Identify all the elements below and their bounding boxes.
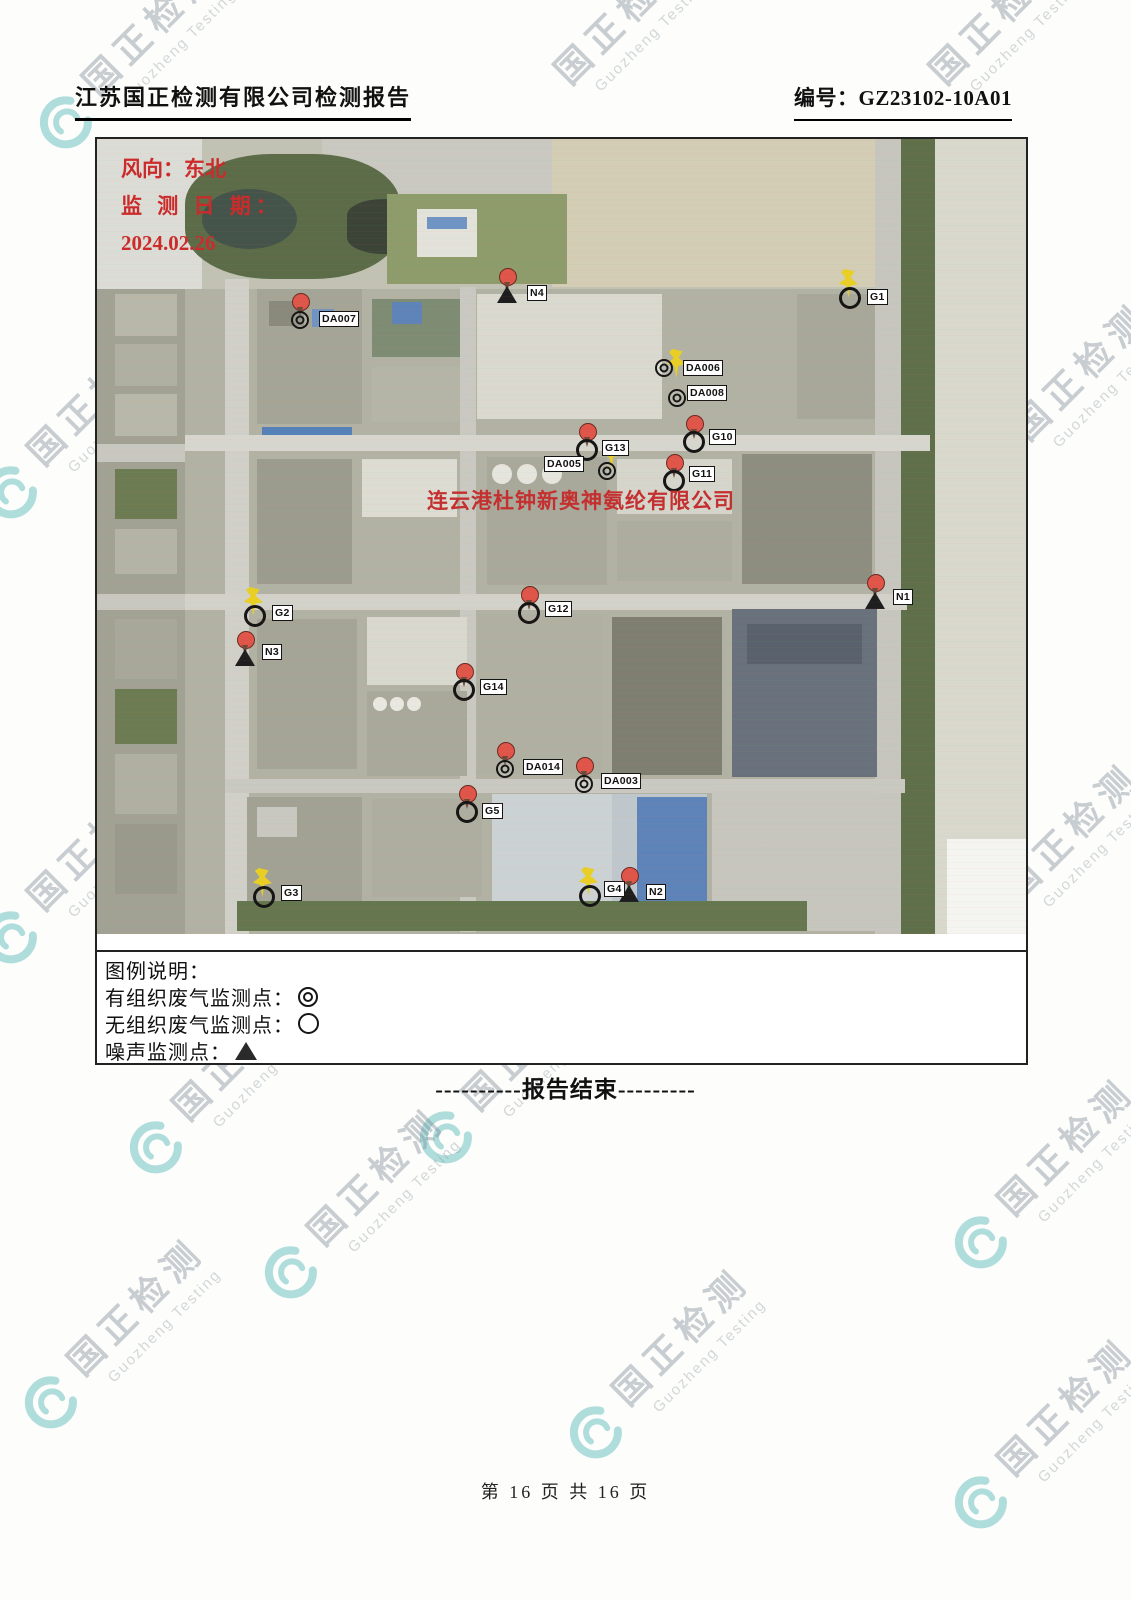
marker-label-DA007: DA007 [319, 311, 359, 327]
map-terrain-block [115, 469, 177, 519]
red-pin-icon [292, 293, 310, 311]
map-terrain-block [492, 464, 512, 484]
watermark-en-text: Guozheng Testing [345, 1136, 465, 1256]
map-terrain-block [257, 459, 352, 584]
watermark-cn-text: 国正检测 [54, 1224, 215, 1385]
unorganized-emission-point-icon [683, 431, 705, 453]
watermark-text: 国正检测 Guozheng Testing [599, 1254, 774, 1429]
red-pin-icon [576, 757, 594, 775]
map-terrain-block [257, 619, 357, 769]
company-name-label: 连云港杜钟新奥神氨纶有限公司 [427, 485, 735, 515]
legend-item-unorganized: 无组织废气监测点： [105, 1010, 1026, 1037]
guozheng-watermark: 国正检测 Guozheng Testing [936, 1324, 1131, 1547]
marker-label-G12: G12 [545, 601, 572, 617]
report-title: 江苏国正检测有限公司检测报告 [75, 80, 411, 121]
map-terrain-block [372, 367, 462, 422]
unorganized-emission-point-icon [244, 605, 266, 627]
map-terrain-block [387, 194, 567, 284]
satellite-map: 风向：东北 监 测 日 期： 2024.02.26 连云港杜钟新奥神氨纶有限公司… [97, 139, 1026, 934]
map-terrain-block [517, 464, 537, 484]
marker-label-G13: G13 [602, 440, 629, 456]
monitor-date-label: 监 测 日 期： [121, 188, 282, 225]
map-terrain-block [612, 617, 722, 775]
marker-label-N2: N2 [646, 884, 666, 900]
map-terrain-block [115, 294, 177, 336]
map-terrain-block [115, 344, 177, 386]
noise-point-icon [865, 592, 885, 609]
map-terrain-block [185, 435, 930, 451]
guozheng-watermark: 国正检测 Guozheng Testing [6, 1224, 229, 1447]
map-terrain-block [115, 689, 177, 744]
organized-emission-point-icon [298, 987, 318, 1007]
map-terrain-block [947, 839, 1026, 934]
map-area: 风向：东北 监 测 日 期： 2024.02.26 连云港杜钟新奥神氨纶有限公司… [97, 139, 1026, 950]
unorganized-emission-point-icon [579, 885, 601, 907]
map-terrain-block [373, 697, 387, 711]
marker-label-DA014: DA014 [523, 759, 563, 775]
unorganized-emission-point-icon [298, 1013, 319, 1034]
map-terrain-block [367, 617, 467, 685]
map-terrain-block [115, 824, 177, 894]
map-terrain-block [97, 594, 185, 610]
watermark-en-text: Guozheng Testing [1050, 331, 1131, 451]
marker-label-N4: N4 [527, 285, 547, 301]
organized-emission-point-icon [291, 311, 309, 329]
watermark-en-text: Guozheng Testing [650, 1296, 770, 1416]
guozheng-logo-icon [251, 1232, 330, 1311]
marker-label-G11: G11 [689, 466, 715, 482]
watermark-cn-text: 国正检测 [294, 1094, 455, 1255]
map-terrain-block [875, 139, 901, 934]
marker-label-N1: N1 [893, 589, 913, 605]
guozheng-logo-icon [0, 452, 50, 531]
watermark-en-text: Guozheng Testing [1040, 791, 1131, 911]
watermark-text: 国正检测 Guozheng Testing [984, 1324, 1131, 1499]
red-pin-icon [499, 268, 517, 286]
legend: 图例说明： 有组织废气监测点： 无组织废气监测点： 噪声监测点： [97, 950, 1026, 1063]
guozheng-logo-icon [11, 1362, 90, 1441]
legend-item-organized: 有组织废气监测点： [105, 983, 1026, 1010]
red-pin-icon [867, 574, 885, 592]
legend-organized-label: 有组织废气监测点： [105, 982, 294, 1011]
map-terrain-block [115, 529, 177, 574]
guozheng-logo-icon [0, 897, 50, 976]
marker-label-G2: G2 [272, 605, 293, 621]
watermark-text: 国正检测 Guozheng Testing [294, 1094, 469, 1269]
organized-emission-point-icon [496, 760, 514, 778]
red-pin-icon [497, 742, 515, 760]
noise-point-icon [235, 1042, 257, 1060]
organized-emission-point-icon [598, 462, 616, 480]
marker-label-G1: G1 [867, 289, 888, 305]
guozheng-logo-icon [406, 1097, 485, 1176]
unorganized-emission-point-icon [518, 602, 540, 624]
marker-label-DA005: DA005 [544, 456, 584, 472]
red-pin-icon [237, 631, 255, 649]
unorganized-emission-point-icon [453, 679, 475, 701]
map-annotation: 风向：东北 监 测 日 期： 2024.02.26 [121, 151, 282, 262]
marker-label-G3: G3 [281, 885, 302, 901]
watermark-cn-text: 国正检测 [984, 1324, 1131, 1485]
watermark-en-text: Guozheng Testing [105, 1266, 225, 1386]
organized-emission-point-icon [668, 389, 686, 407]
map-terrain-block [257, 807, 297, 837]
map-terrain-block [115, 394, 177, 436]
map-terrain-block [237, 901, 807, 931]
map-terrain-block [617, 521, 732, 581]
unorganized-emission-point-icon [456, 801, 478, 823]
marker-label-G4: G4 [604, 881, 625, 897]
unorganized-emission-point-icon [839, 287, 861, 309]
organized-emission-point-icon [575, 775, 593, 793]
noise-point-icon [235, 649, 255, 666]
page-number: 第 16 页 共 16 页 [0, 1478, 1131, 1504]
legend-title-row: 图例说明： [105, 956, 1026, 983]
marker-label-G5: G5 [482, 803, 503, 819]
legend-item-noise: 噪声监测点： [105, 1037, 1026, 1064]
map-report-box: 风向：东北 监 测 日 期： 2024.02.26 连云港杜钟新奥神氨纶有限公司… [95, 137, 1028, 1065]
marker-label-DA008: DA008 [687, 385, 727, 401]
map-terrain-block [427, 217, 467, 229]
map-terrain-block [97, 444, 185, 462]
watermark-en-text: Guozheng Testing [1035, 1106, 1131, 1226]
map-terrain-block [390, 697, 404, 711]
map-terrain-block [897, 139, 935, 934]
map-terrain-block [932, 139, 1026, 934]
noise-point-icon [497, 286, 517, 303]
marker-label-DA003: DA003 [601, 773, 641, 789]
report-page: 江苏国正检测有限公司检测报告 编号：GZ23102-10A01 风向：东北 监 … [0, 0, 1131, 1600]
monitor-date-value: 2024.02.26 [121, 225, 282, 262]
marker-label-DA006: DA006 [683, 360, 723, 376]
guozheng-logo-icon [556, 1392, 635, 1471]
end-of-report-text: ----------报告结束--------- [0, 1070, 1131, 1104]
watermark-en-text: Guozheng Testing [1035, 1366, 1131, 1486]
marker-label-N3: N3 [262, 644, 282, 660]
report-number: 编号：GZ23102-10A01 [794, 82, 1012, 121]
guozheng-watermark: 国正检测 Guozheng Testing [551, 1254, 774, 1477]
watermark-text: 国正检测 Guozheng Testing [54, 1224, 229, 1399]
map-terrain-block [797, 294, 875, 419]
guozheng-watermark: 国正检测 Guozheng Testing [246, 1094, 469, 1317]
map-terrain-block [407, 697, 421, 711]
watermark-cn-text: 国正检测 [599, 1254, 760, 1415]
wind-direction-label: 风向：东北 [121, 151, 282, 188]
guozheng-logo-icon [941, 1202, 1020, 1281]
map-terrain-block [747, 624, 862, 664]
guozheng-logo-icon [116, 1107, 195, 1186]
map-terrain-block [362, 524, 457, 582]
map-terrain-block [392, 302, 422, 324]
map-terrain-block [742, 454, 872, 584]
marker-label-G10: G10 [709, 429, 736, 445]
unorganized-emission-point-icon [253, 886, 275, 908]
legend-unorganized-label: 无组织废气监测点： [105, 1009, 294, 1038]
marker-label-G14: G14 [480, 679, 507, 695]
map-terrain-block [115, 754, 177, 814]
legend-noise-label: 噪声监测点： [105, 1036, 231, 1065]
page-header: 江苏国正检测有限公司检测报告 编号：GZ23102-10A01 [75, 80, 1012, 121]
organized-emission-point-icon [655, 359, 673, 377]
legend-title: 图例说明： [105, 955, 210, 984]
map-terrain-block [477, 294, 662, 419]
map-terrain-block [115, 619, 177, 679]
